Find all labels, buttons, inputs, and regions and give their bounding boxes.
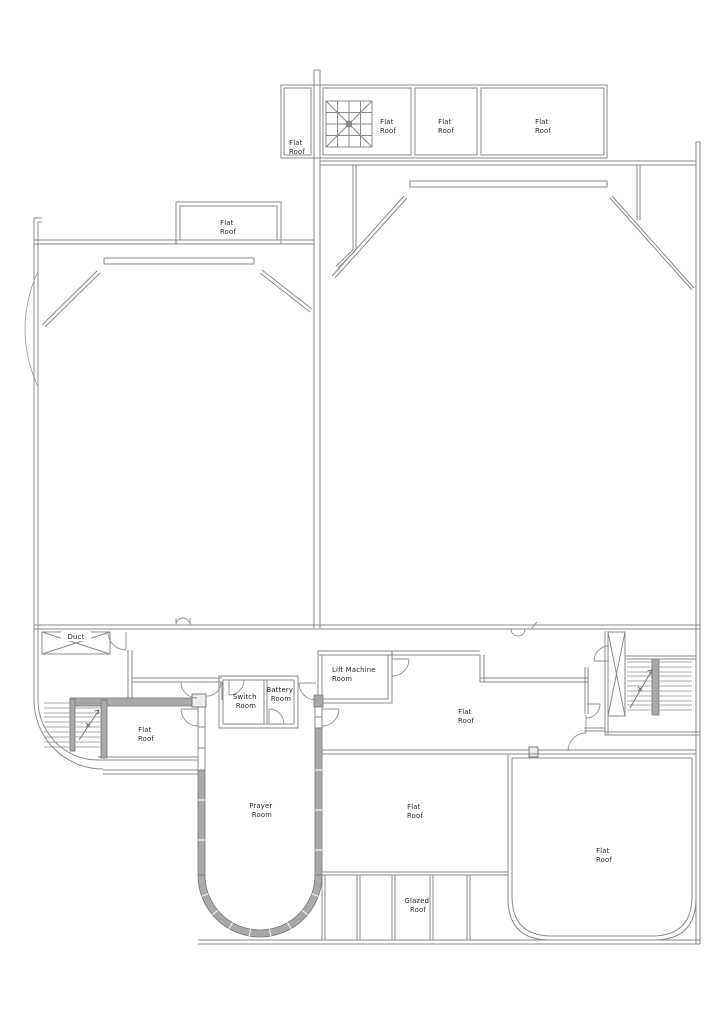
walls-layer	[25, 70, 700, 944]
skylight-icon	[326, 101, 372, 147]
stairs-right	[627, 662, 692, 710]
column	[192, 694, 206, 707]
room-label-glazed-roof: Glazed Roof	[405, 897, 432, 914]
room-label-lift-machine-room: Lift Machine Room	[332, 666, 378, 683]
room-label-switch-room: Switch Room	[233, 693, 259, 710]
rooflight-strip	[410, 181, 607, 187]
structural-walls	[70, 659, 659, 937]
duct-shaft-right	[608, 632, 625, 716]
room-label-flat-roof-central: Flat Roof	[458, 708, 474, 725]
room-labels: Flat Roof Flat Roof Flat Roof Flat Roof …	[61, 118, 612, 914]
door-swings	[108, 618, 609, 751]
floor-plan-drawing: Flat Roof Flat Roof Flat Roof Flat Roof …	[0, 0, 723, 1024]
room-label-prayer-room: Prayer Room	[249, 802, 275, 819]
rooflight-strip	[104, 258, 254, 264]
room-label-flat-roof-top-c: Flat Roof	[535, 118, 551, 135]
room-label-flat-roof-top-b: Flat Roof	[438, 118, 454, 135]
room-label-flat-roof-upper-left: Flat Roof	[220, 219, 236, 236]
room-label-flat-roof-west: Flat Roof	[138, 726, 154, 743]
floor-plan-page: Flat Roof Flat Roof Flat Roof Flat Roof …	[0, 0, 723, 1024]
room-label-battery-room: Battery Room	[267, 686, 296, 703]
room-label-flat-roof-top-a: Flat Roof	[380, 118, 396, 135]
room-label-flat-roof-strip: Flat Roof	[289, 139, 305, 156]
column	[529, 747, 538, 757]
room-label-flat-roof-south: Flat Roof	[407, 803, 423, 820]
room-label-flat-roof-southeast: Flat Roof	[596, 847, 612, 864]
room-label-duct: Duct	[68, 633, 85, 641]
wall-joint-ticks	[198, 770, 322, 936]
